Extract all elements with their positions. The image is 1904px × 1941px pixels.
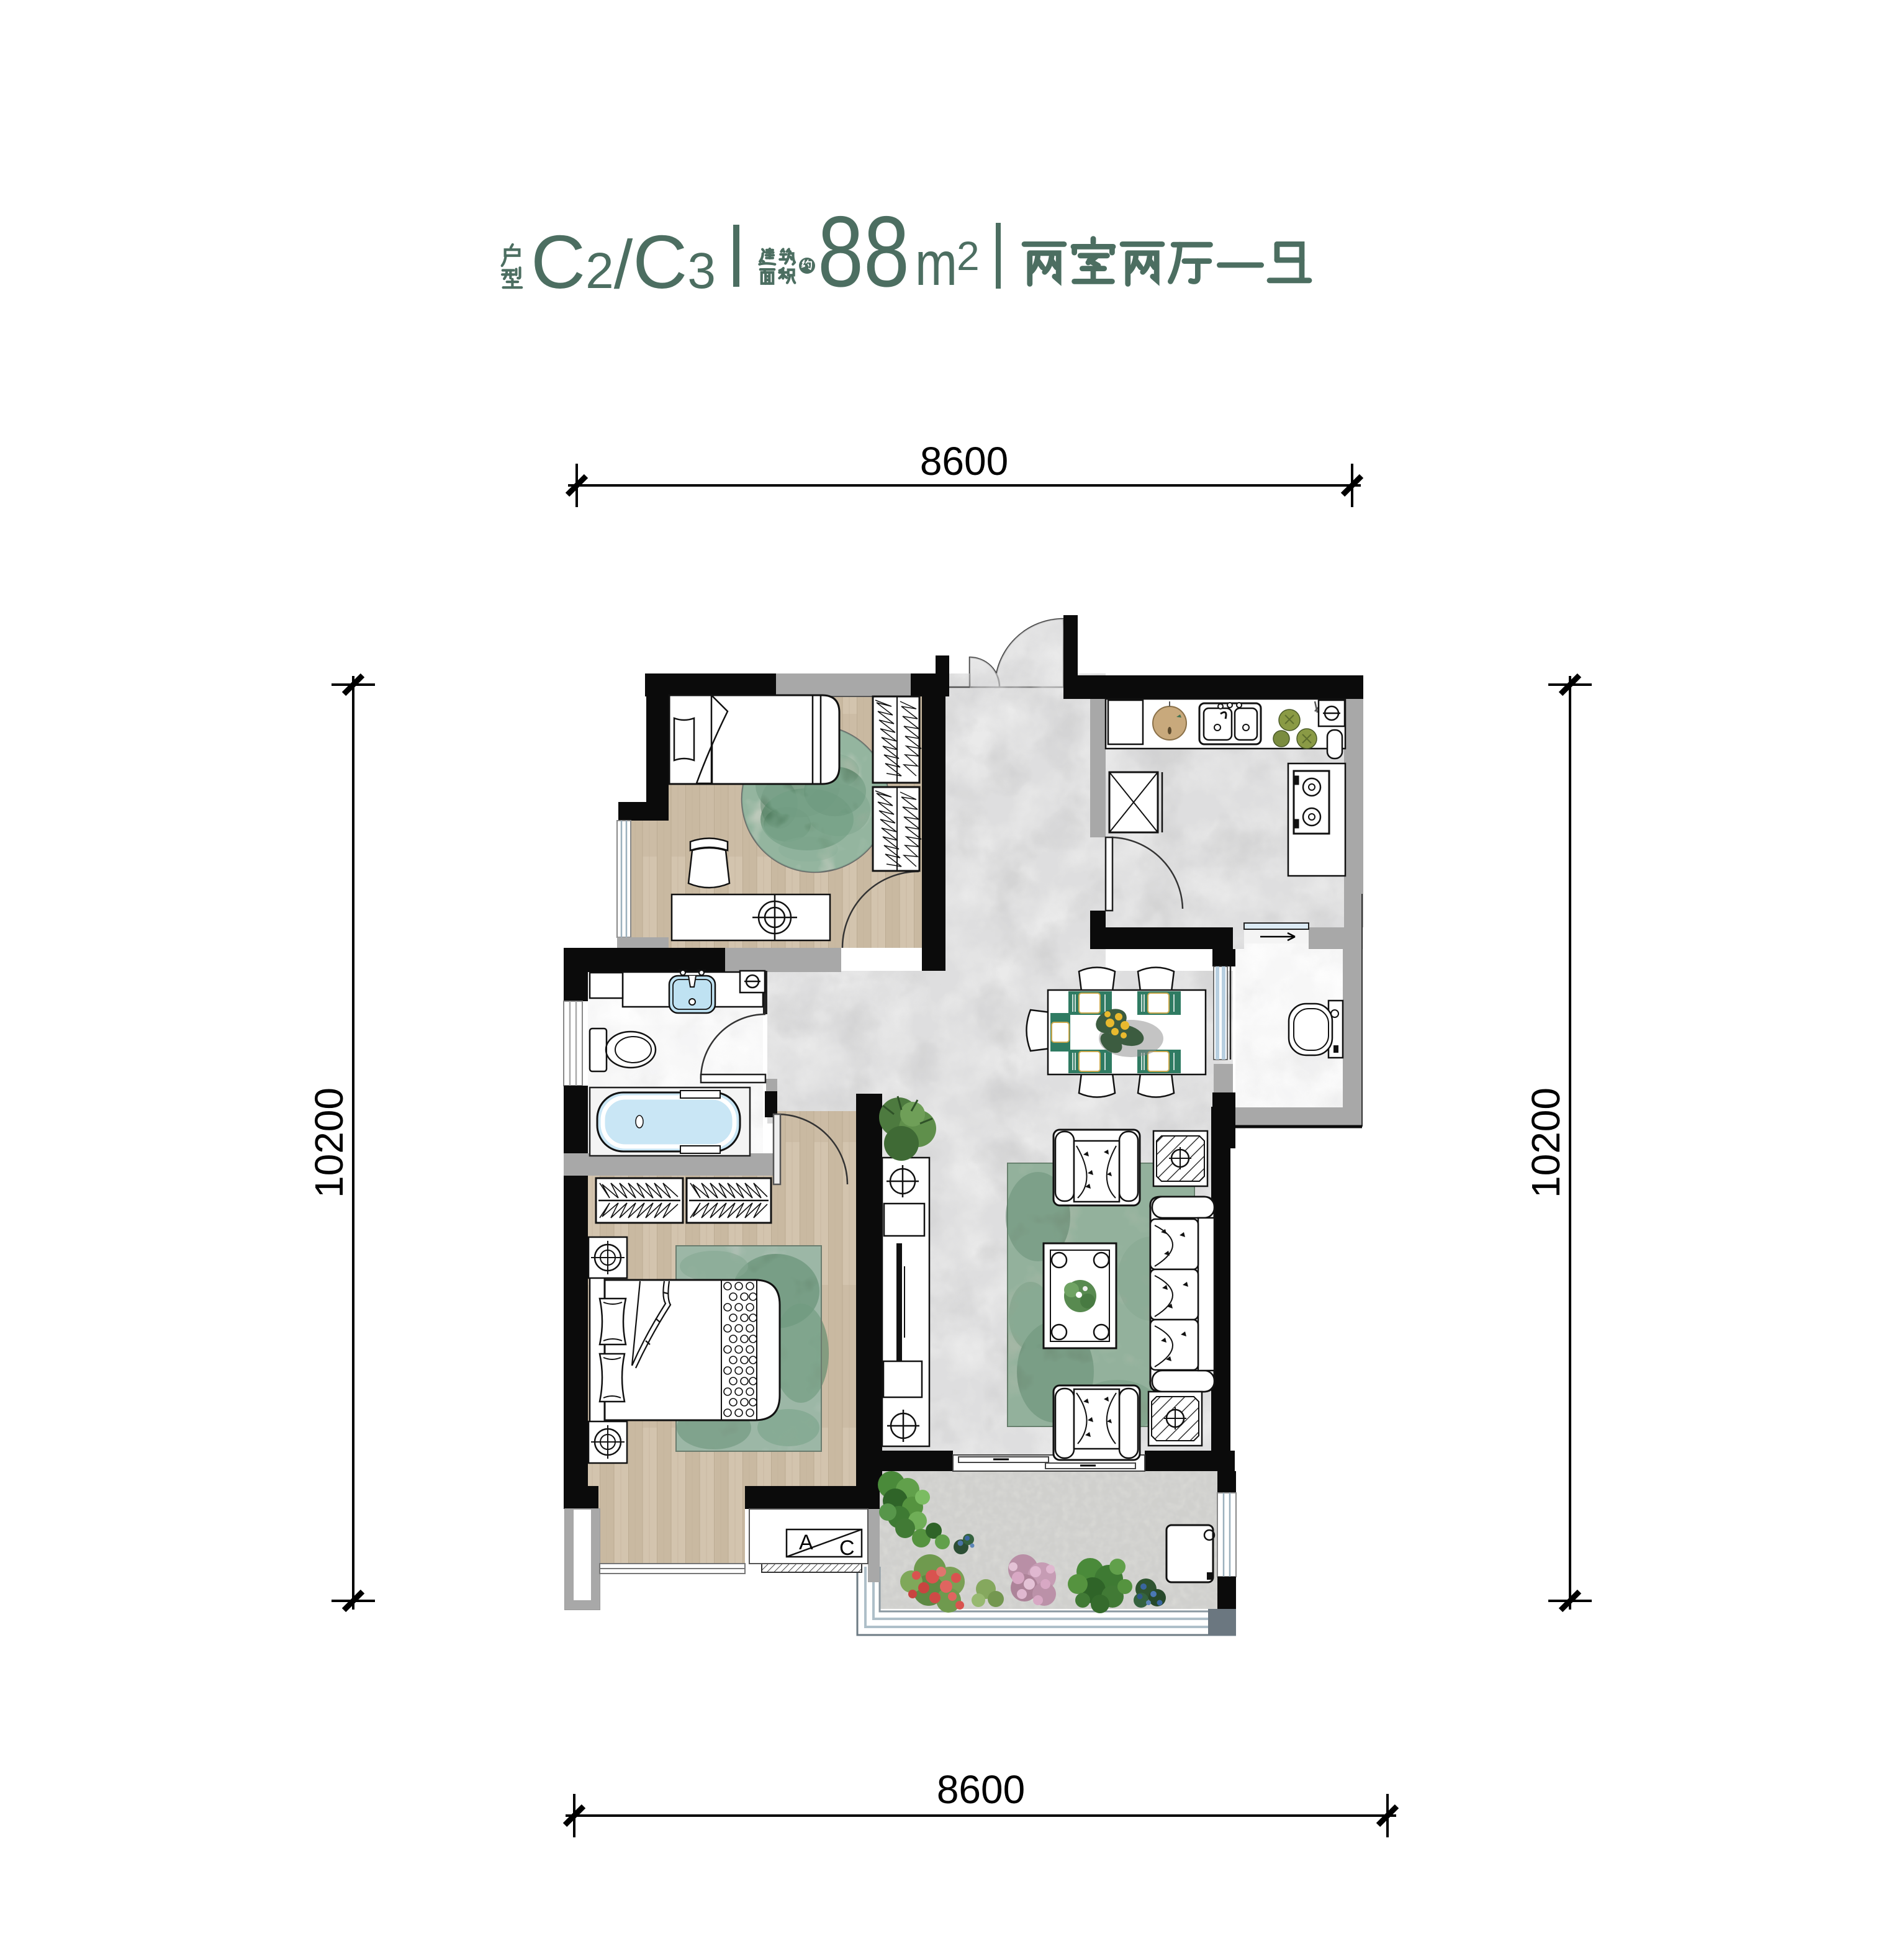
svg-text:A: A: [799, 1531, 813, 1554]
svg-text:m: m: [915, 229, 957, 299]
svg-text:10200: 10200: [1523, 1088, 1568, 1198]
svg-text:10200: 10200: [307, 1088, 351, 1198]
svg-text:8600: 8600: [937, 1767, 1025, 1812]
svg-text:88: 88: [818, 196, 909, 308]
svg-text:C: C: [839, 1536, 855, 1560]
svg-text:8600: 8600: [920, 439, 1008, 484]
svg-text:2: 2: [957, 233, 980, 279]
